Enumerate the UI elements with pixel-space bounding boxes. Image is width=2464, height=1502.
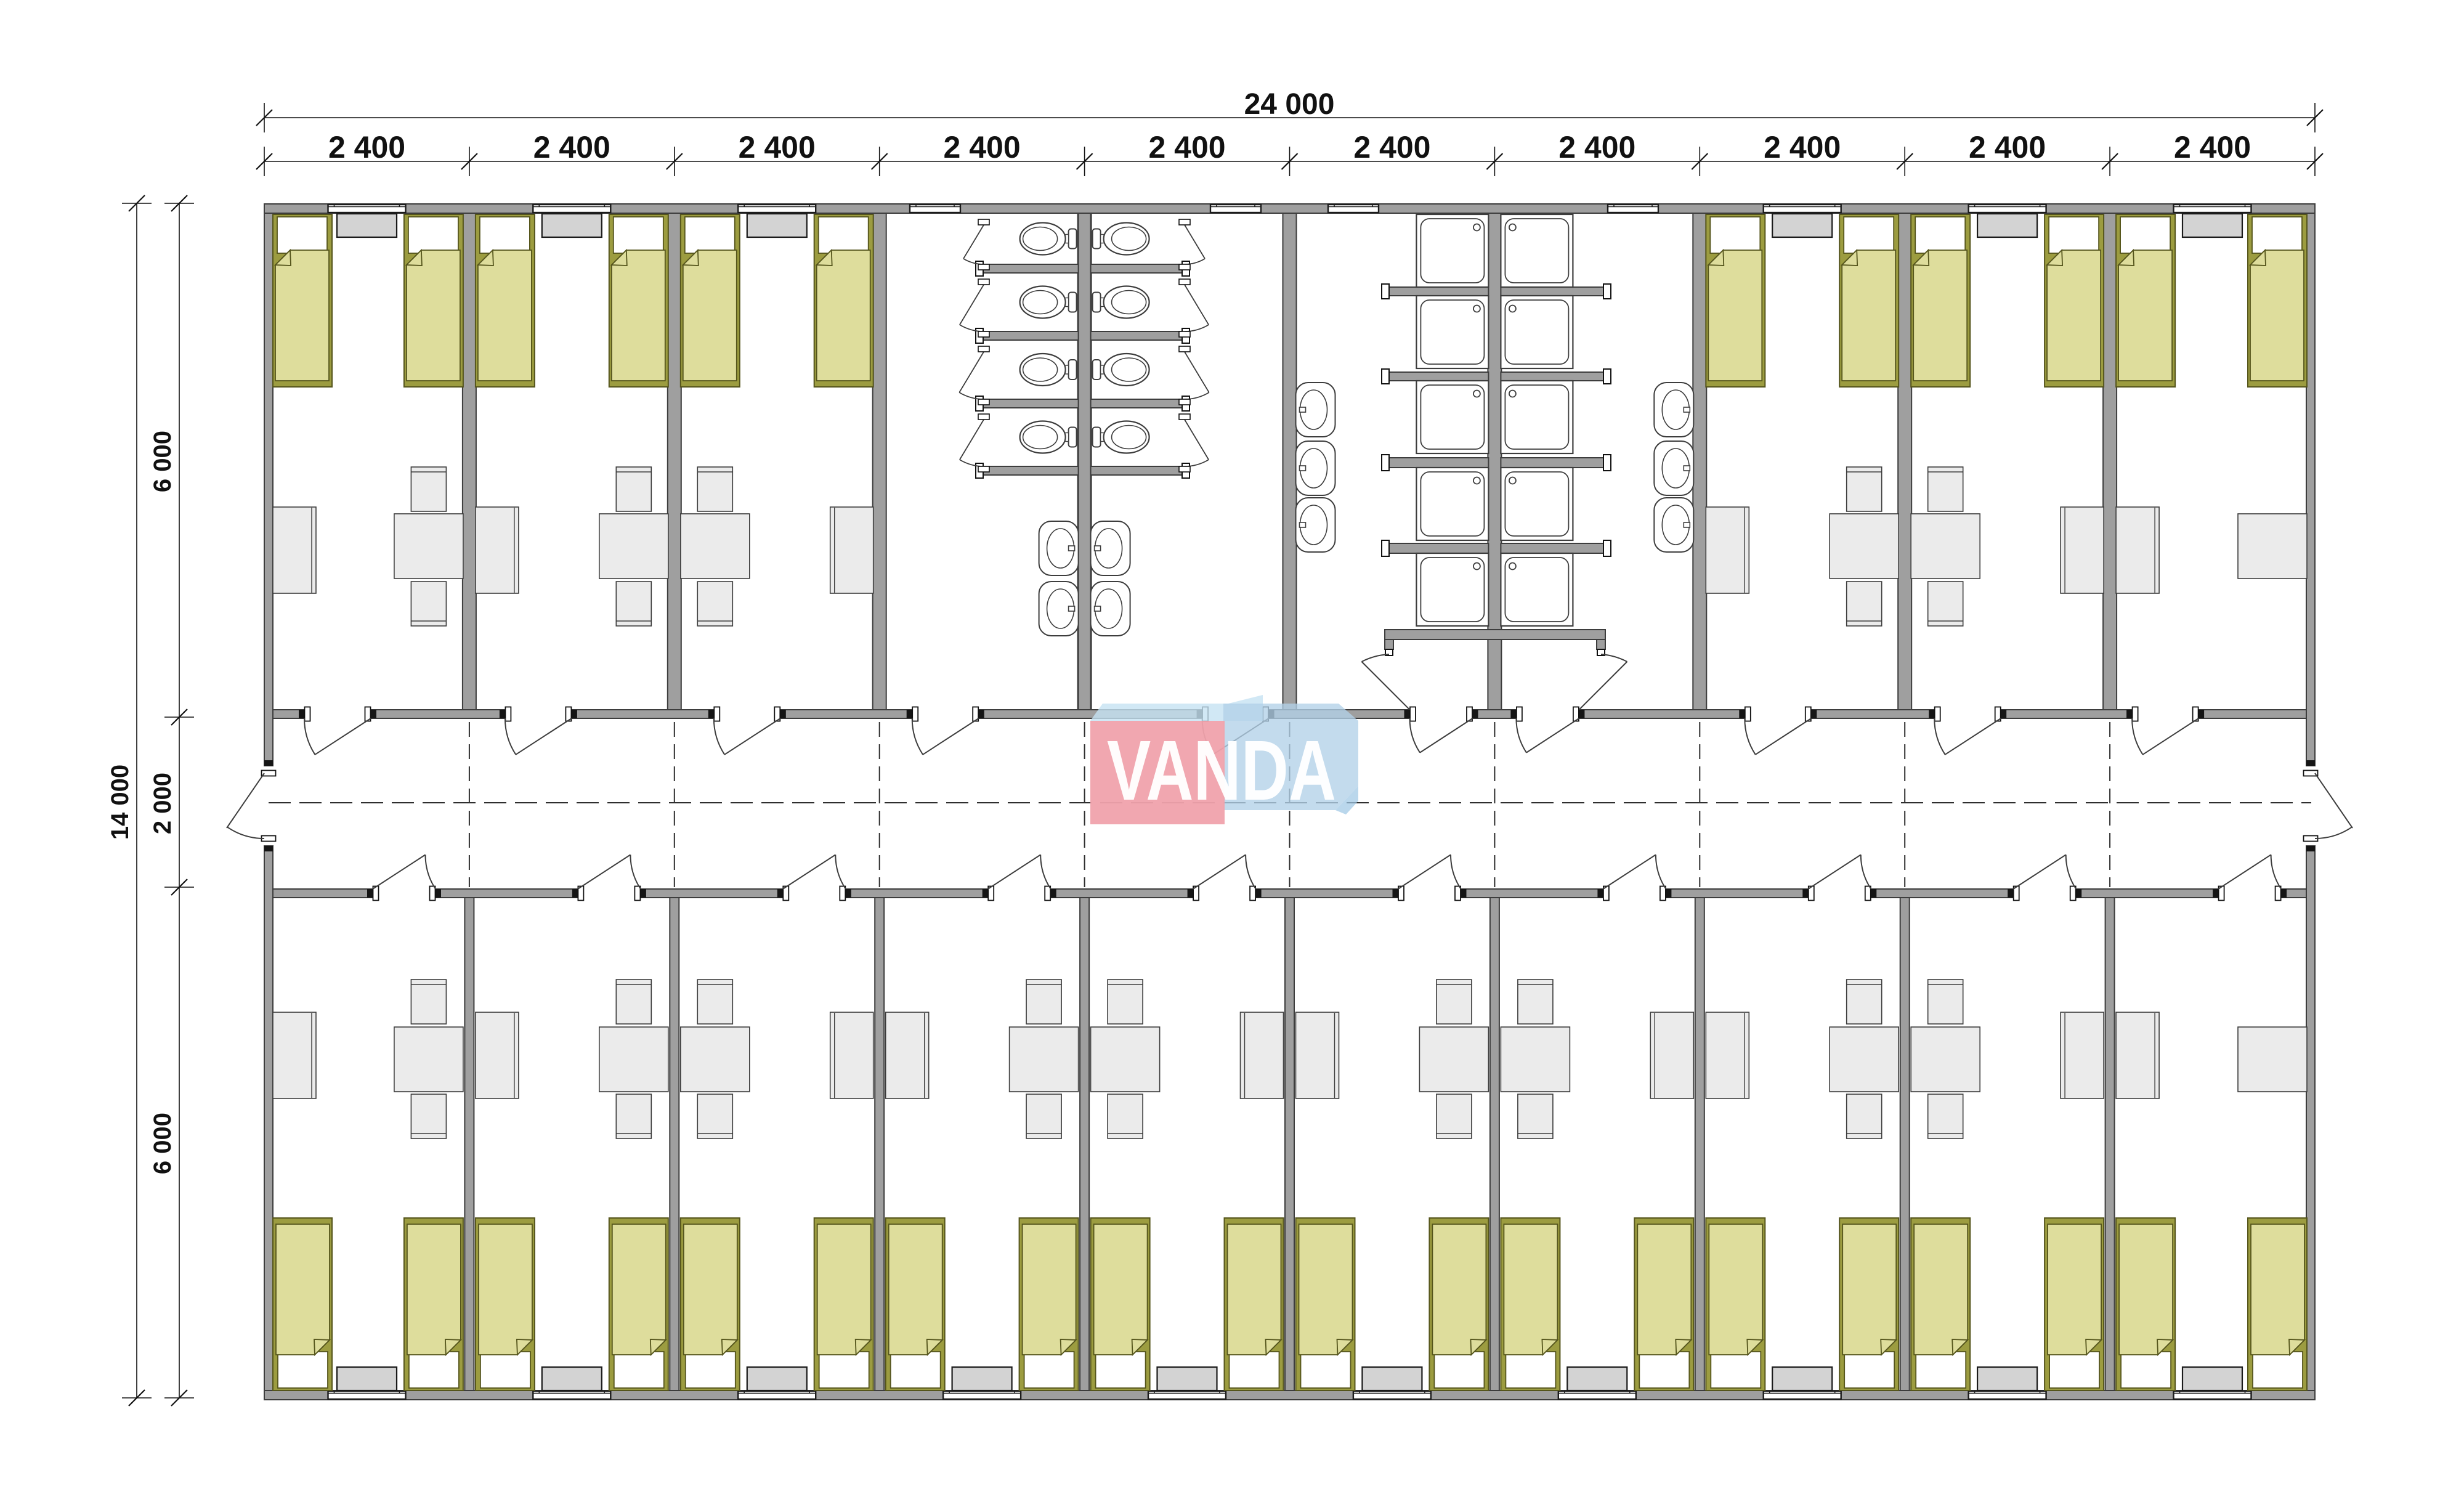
svg-text:2 400: 2 400 <box>328 130 405 164</box>
svg-text:14 000: 14 000 <box>107 765 134 840</box>
svg-text:2 400: 2 400 <box>533 130 610 164</box>
svg-text:24 000: 24 000 <box>1244 88 1335 121</box>
svg-text:6 000: 6 000 <box>149 1113 176 1174</box>
svg-text:VANDA: VANDA <box>1107 723 1336 818</box>
svg-text:2 400: 2 400 <box>739 130 816 164</box>
svg-text:2 400: 2 400 <box>944 130 1021 164</box>
svg-text:2 400: 2 400 <box>1148 130 1225 164</box>
svg-text:2 400: 2 400 <box>1353 130 1430 164</box>
svg-text:2 400: 2 400 <box>1558 130 1635 164</box>
svg-text:2 400: 2 400 <box>1764 130 1841 164</box>
svg-text:2 000: 2 000 <box>149 773 176 834</box>
svg-text:2 400: 2 400 <box>1969 130 2046 164</box>
svg-text:2 400: 2 400 <box>2174 130 2251 164</box>
svg-text:6 000: 6 000 <box>149 431 176 492</box>
